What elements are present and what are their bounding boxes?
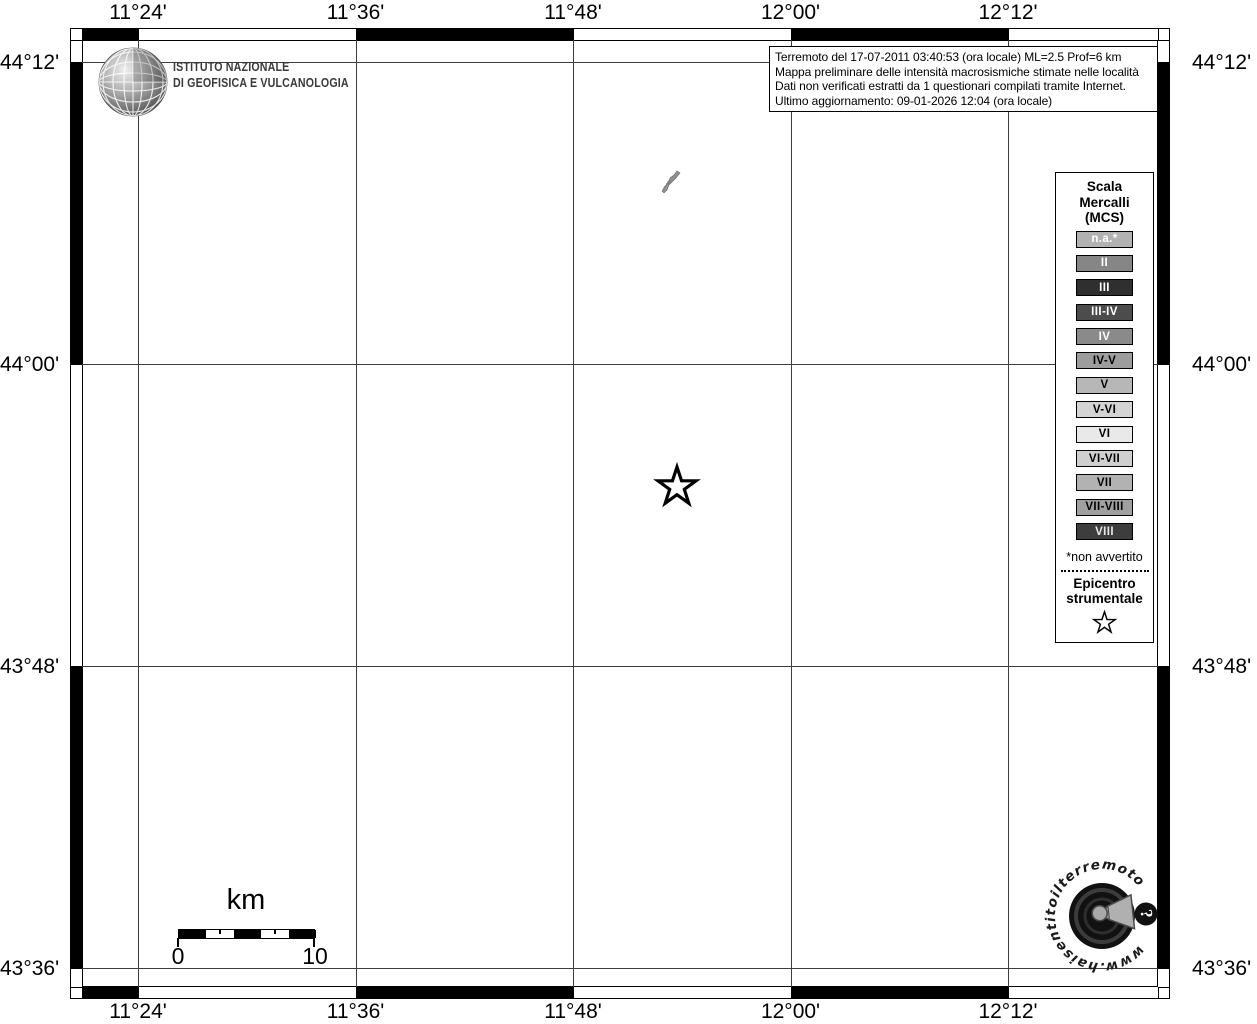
- map-feature-blob: [655, 168, 685, 201]
- legend-item-n-a-: n.a.*: [1076, 231, 1133, 248]
- event-info-line3: Dati non verificati estratti da 1 questi…: [775, 79, 1152, 94]
- legend-item-vii: VII: [1076, 474, 1133, 491]
- legend-item-v-vi: V-VI: [1076, 401, 1133, 418]
- lon-label-top: 12°12': [963, 1, 1053, 25]
- legend-item-iii: III: [1076, 279, 1133, 296]
- legend-epicenter-line2: strumentale: [1066, 591, 1143, 606]
- legend-item-iv: IV: [1076, 328, 1133, 345]
- legend-star-icon: [1091, 609, 1118, 642]
- map-scale-bar: km 0 10: [150, 884, 370, 979]
- legend-item-viii: VIII: [1076, 523, 1133, 540]
- legend-item-v: V: [1076, 377, 1133, 394]
- lat-label-right: 44°00': [1192, 353, 1257, 377]
- legend-separator: [1061, 570, 1149, 572]
- lat-label-right: 43°36': [1192, 957, 1257, 981]
- scale-unit-label: km: [196, 884, 296, 917]
- legend-title-line1: Scala: [1079, 179, 1129, 195]
- legend-item-iii-iv: III-IV: [1076, 304, 1133, 321]
- legend-item-vi: VI: [1076, 426, 1133, 443]
- legend-footnote: *non avvertito: [1066, 550, 1142, 564]
- lon-label-top: 11°48': [528, 1, 618, 25]
- lon-label-top: 12°00': [746, 1, 836, 25]
- legend-title-line3: (MCS): [1079, 210, 1129, 226]
- legend-title: Scala Mercalli (MCS): [1079, 179, 1129, 226]
- legend-title-line2: Mercalli: [1079, 195, 1129, 211]
- ingv-logo: ISTITUTO NAZIONALE DI GEOFISICA E VULCAN…: [97, 45, 387, 122]
- legend-items: n.a.*IIIIIIII-IVIVIV-VVV-VIVIVI-VIIVIIVI…: [1076, 231, 1133, 548]
- scale-end-label: 10: [295, 943, 335, 970]
- event-info-line2: Mappa preliminare delle intensità macros…: [775, 65, 1152, 80]
- lat-label-left: 44°00': [0, 353, 58, 377]
- scale-bar-graphic: [178, 929, 315, 939]
- lat-label-right: 43°48': [1192, 655, 1257, 679]
- lat-label-left: 43°36': [0, 957, 58, 981]
- lon-label-bottom: 11°36': [311, 1000, 401, 1024]
- lat-label-left: 44°12': [0, 51, 58, 75]
- ingv-name-line2: DI GEOFISICA E VULCANOLOGIA: [173, 75, 349, 91]
- lon-label-bottom: 11°24': [93, 1000, 183, 1024]
- haisentito-logo: ? www.haisentitoilterremoto.it: [1036, 850, 1170, 989]
- legend-item-vi-vii: VI-VII: [1076, 450, 1133, 467]
- legend-item-ii: II: [1076, 255, 1133, 272]
- lon-label-top: 11°36': [311, 1, 401, 25]
- lon-label-top: 11°24': [93, 1, 183, 25]
- lat-label-right: 44°12': [1192, 51, 1257, 75]
- ingv-name-line1: ISTITUTO NAZIONALE: [173, 59, 349, 75]
- lon-label-bottom: 12°12': [963, 1000, 1053, 1024]
- scale-start-label: 0: [158, 943, 198, 970]
- lon-label-bottom: 11°48': [528, 1000, 618, 1024]
- lon-label-bottom: 12°00': [746, 1000, 836, 1024]
- event-info-line1: Terremoto del 17-07-2011 03:40:53 (ora l…: [775, 50, 1152, 65]
- ingv-globe-icon: [97, 45, 169, 122]
- legend-item-vii-viii: VII-VIII: [1076, 499, 1133, 516]
- lat-label-left: 43°48': [0, 655, 58, 679]
- event-info-box: Terremoto del 17-07-2011 03:40:53 (ora l…: [769, 46, 1158, 112]
- epicenter-star-icon: [653, 462, 701, 517]
- ingv-name: ISTITUTO NAZIONALE DI GEOFISICA E VULCAN…: [173, 59, 349, 90]
- mercalli-legend: Scala Mercalli (MCS) n.a.*IIIIIIII-IVIVI…: [1055, 172, 1154, 643]
- macroseismic-map: 11°24'11°24'11°36'11°36'11°48'11°48'12°0…: [0, 0, 1257, 1024]
- legend-epicenter-line1: Epicentro: [1066, 576, 1143, 591]
- event-info-line4: Ultimo aggiornamento: 09-01-2026 12:04 (…: [775, 94, 1152, 109]
- legend-item-iv-v: IV-V: [1076, 352, 1133, 369]
- legend-epicenter-label: Epicentro strumentale: [1066, 576, 1143, 606]
